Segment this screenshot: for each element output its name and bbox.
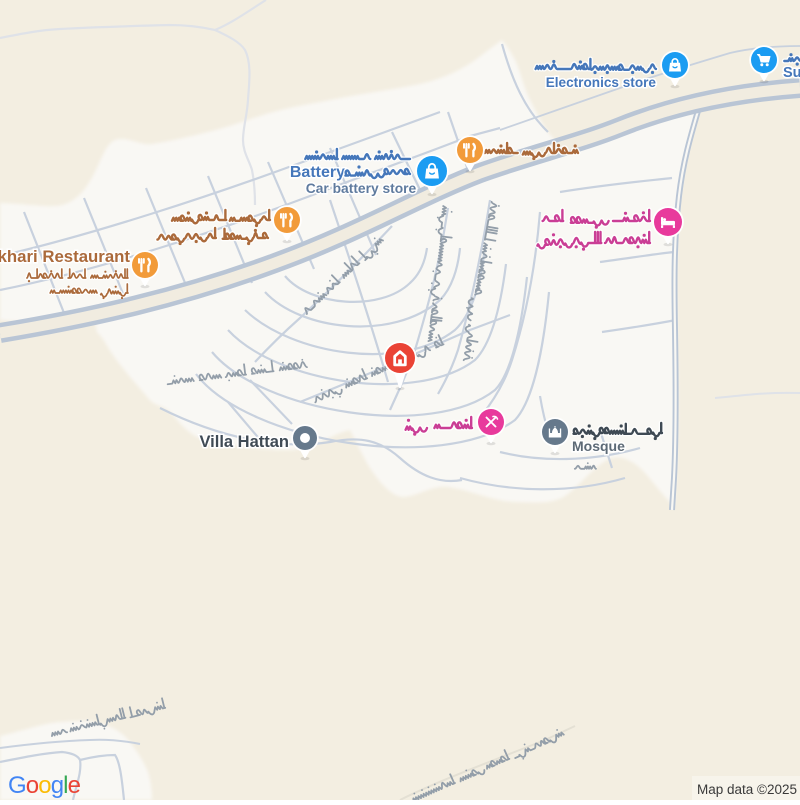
svg-text:Map data ©2025: Map data ©2025 <box>697 782 797 797</box>
svg-text:Car battery store: Car battery store <box>306 181 417 196</box>
svg-text:Battery: Battery <box>290 164 345 181</box>
svg-text:Google: Google <box>8 772 81 799</box>
svg-text:Mosque: Mosque <box>572 438 625 454</box>
svg-text:Su: Su <box>783 65 800 81</box>
svg-text:Electronics store: Electronics store <box>546 75 657 90</box>
svg-text:Villa Hattan: Villa Hattan <box>199 433 289 451</box>
svg-text:khari Restaurant: khari Restaurant <box>0 247 130 266</box>
